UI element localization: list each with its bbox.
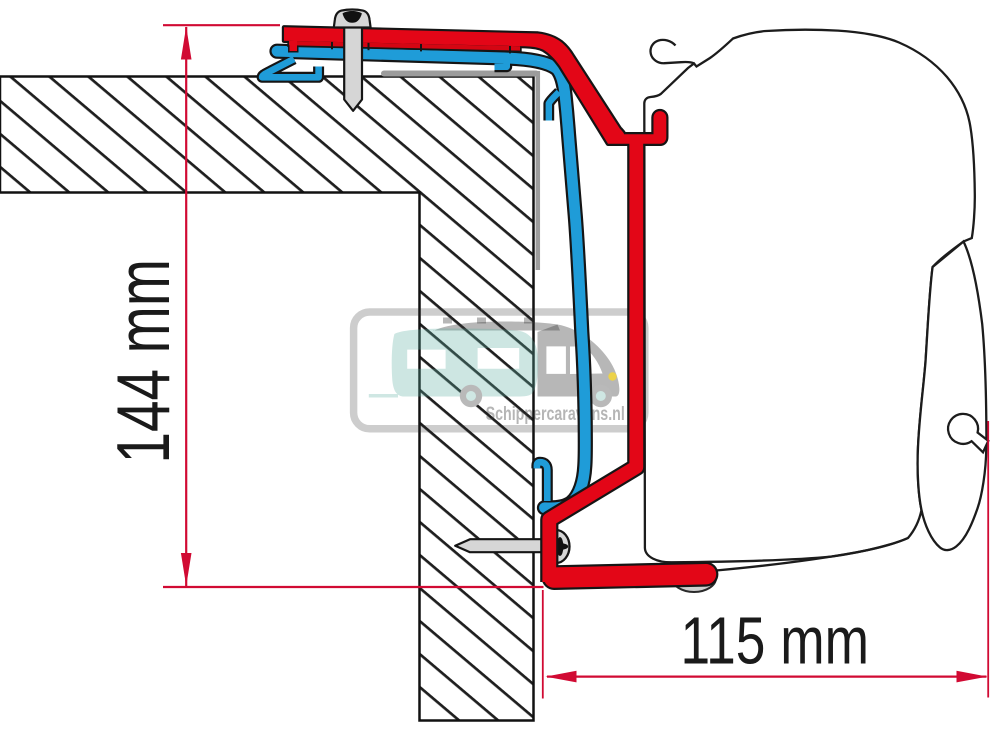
svg-text:115 mm: 115 mm — [681, 605, 870, 679]
svg-text:Schippercaravans.nl: Schippercaravans.nl — [486, 403, 625, 425]
svg-text:144 mm: 144 mm — [101, 259, 185, 464]
